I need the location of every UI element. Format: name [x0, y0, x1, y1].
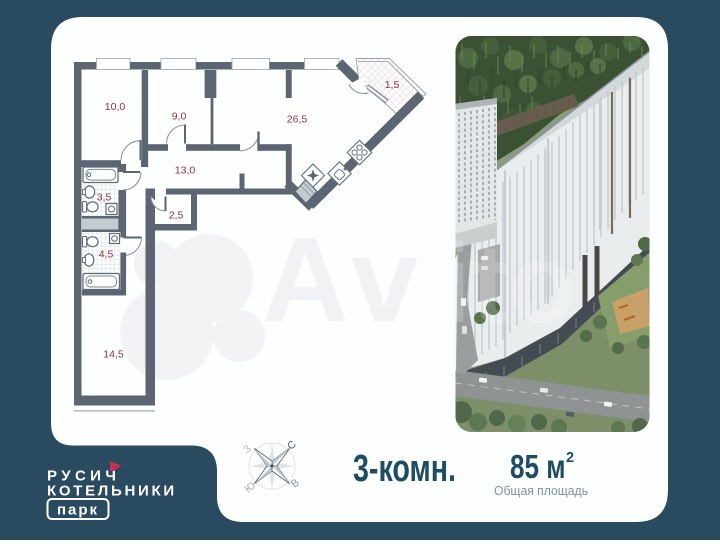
svg-text:2,5: 2,5 — [169, 210, 184, 222]
svg-text:26,5: 26,5 — [287, 114, 308, 126]
svg-text:10,0: 10,0 — [105, 101, 126, 113]
svg-text:4,5: 4,5 — [99, 249, 114, 261]
svg-text:Av: Av — [262, 213, 425, 347]
svg-text:3,5: 3,5 — [97, 192, 112, 204]
svg-text:9,0: 9,0 — [172, 111, 187, 123]
svg-text:85 м: 85 м — [510, 448, 566, 485]
svg-text:2: 2 — [566, 450, 574, 466]
svg-text:Общая площадь: Общая площадь — [494, 483, 588, 498]
svg-text:ito: ito — [440, 221, 577, 346]
svg-text:1,5: 1,5 — [385, 79, 400, 91]
svg-text:3-комн.: 3-комн. — [353, 448, 456, 490]
svg-text:14,5: 14,5 — [103, 349, 124, 361]
svg-text:13,0: 13,0 — [175, 165, 196, 177]
svg-text:КОТЕЛЬНИКИ: КОТЕЛЬНИКИ — [47, 483, 177, 500]
svg-text:парк: парк — [57, 502, 99, 519]
